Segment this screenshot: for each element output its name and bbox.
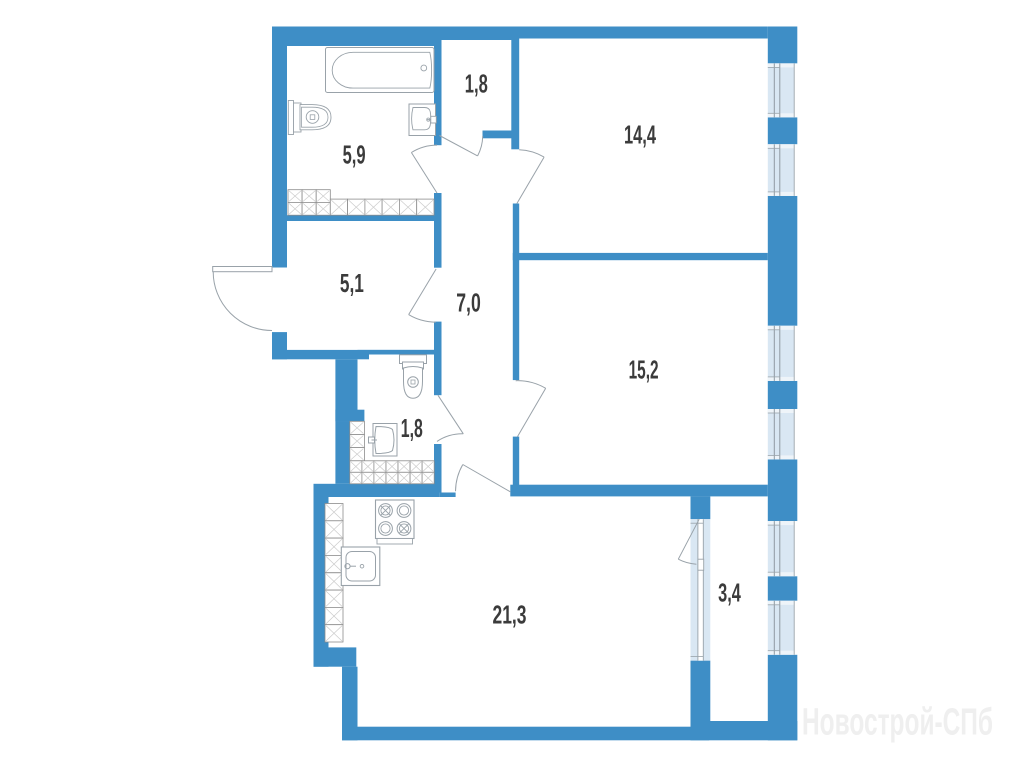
- svg-text:7,0: 7,0: [456, 287, 481, 317]
- svg-text:1,8: 1,8: [465, 68, 488, 98]
- svg-text:14,4: 14,4: [624, 120, 656, 150]
- svg-text:3,4: 3,4: [718, 578, 741, 608]
- svg-text:21,3: 21,3: [493, 600, 527, 630]
- svg-text:15,2: 15,2: [629, 355, 659, 385]
- svg-text:Новострой-СПб: Новострой-СПб: [802, 702, 993, 744]
- svg-text:5,1: 5,1: [340, 268, 364, 298]
- svg-text:1,8: 1,8: [401, 413, 423, 443]
- svg-text:5,9: 5,9: [343, 139, 366, 169]
